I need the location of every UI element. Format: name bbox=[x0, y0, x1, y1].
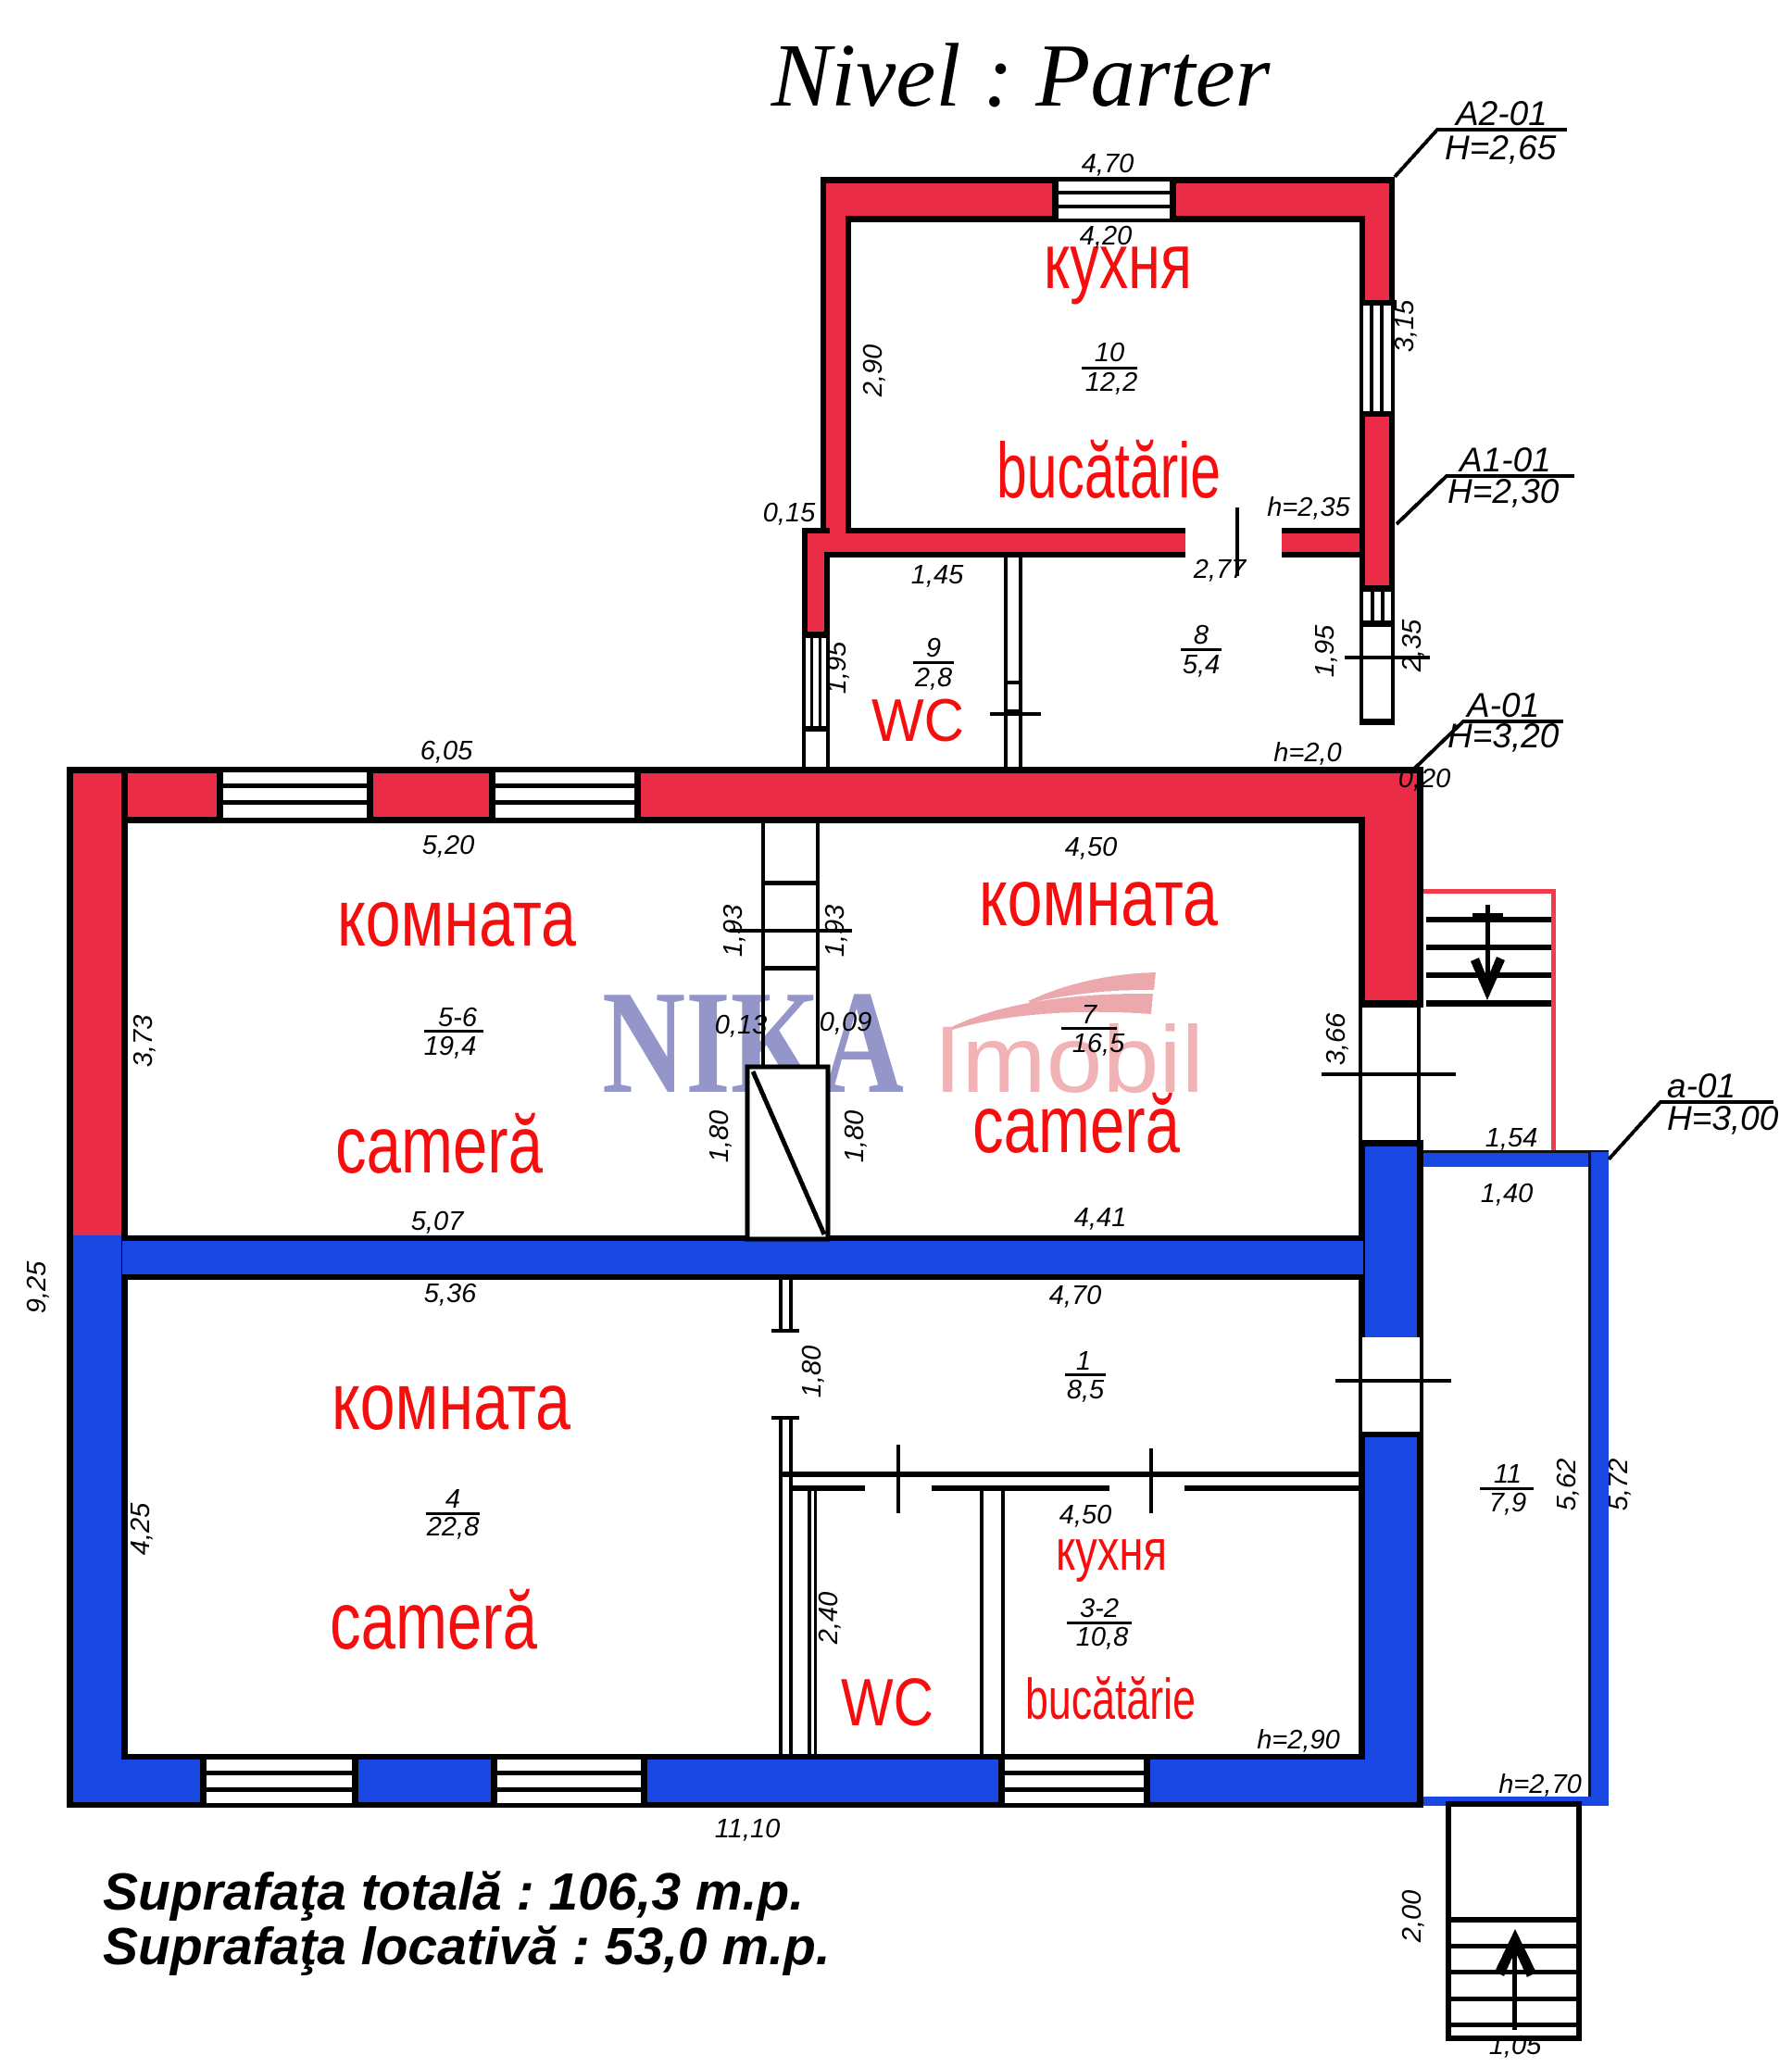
svg-text:1,80: 1,80 bbox=[705, 1110, 734, 1162]
svg-text:5-6: 5-6 bbox=[438, 1003, 478, 1033]
svg-text:H=3,00: H=3,00 bbox=[1667, 1099, 1779, 1137]
svg-text:cameră: cameră bbox=[330, 1576, 537, 1666]
svg-text:1,93: 1,93 bbox=[719, 905, 748, 957]
svg-text:1,80: 1,80 bbox=[840, 1110, 870, 1162]
svg-text:1,40: 1,40 bbox=[1481, 1179, 1533, 1209]
svg-text:0,15: 0,15 bbox=[763, 498, 816, 528]
svg-text:h=2,0: h=2,0 bbox=[1273, 738, 1341, 768]
svg-text:2,77: 2,77 bbox=[1193, 555, 1247, 584]
svg-text:1: 1 bbox=[1076, 1347, 1091, 1376]
svg-text:10: 10 bbox=[1095, 338, 1124, 368]
svg-text:WC: WC bbox=[841, 1666, 934, 1740]
svg-text:5,20: 5,20 bbox=[422, 831, 474, 860]
svg-text:2,40: 2,40 bbox=[814, 1592, 844, 1645]
svg-text:h=2,90: h=2,90 bbox=[1257, 1725, 1340, 1755]
svg-text:5,36: 5,36 bbox=[424, 1279, 477, 1309]
svg-text:0,13: 0,13 bbox=[715, 1010, 767, 1040]
svg-text:3,73: 3,73 bbox=[129, 1015, 158, 1067]
svg-text:Nivel : Parter: Nivel : Parter bbox=[771, 26, 1272, 125]
svg-text:1,05: 1,05 bbox=[1489, 2031, 1542, 2061]
svg-text:H=3,20: H=3,20 bbox=[1447, 717, 1560, 755]
svg-text:WC: WC bbox=[871, 686, 964, 754]
svg-text:2,90: 2,90 bbox=[858, 344, 888, 397]
svg-text:h=2,35: h=2,35 bbox=[1267, 493, 1350, 522]
svg-text:10,8: 10,8 bbox=[1076, 1622, 1128, 1652]
svg-text:4,41: 4,41 bbox=[1074, 1203, 1126, 1233]
svg-text:11,10: 11,10 bbox=[715, 1814, 780, 1844]
svg-text:5,62: 5,62 bbox=[1552, 1459, 1582, 1510]
svg-text:5,72: 5,72 bbox=[1604, 1459, 1634, 1510]
svg-text:3-2: 3-2 bbox=[1080, 1594, 1119, 1623]
svg-text:4,70: 4,70 bbox=[1082, 149, 1134, 179]
svg-text:A2-01: A2-01 bbox=[1454, 94, 1548, 132]
svg-text:комната: комната bbox=[979, 853, 1218, 943]
svg-text:7,9: 7,9 bbox=[1489, 1488, 1526, 1518]
svg-text:1,45: 1,45 bbox=[911, 560, 964, 590]
svg-text:1,80: 1,80 bbox=[797, 1346, 827, 1397]
svg-text:0,20: 0,20 bbox=[1398, 764, 1450, 794]
svg-text:9,25: 9,25 bbox=[22, 1260, 52, 1313]
svg-text:H=2,65: H=2,65 bbox=[1445, 129, 1557, 167]
svg-text:комната: комната bbox=[337, 873, 576, 963]
svg-text:cameră: cameră bbox=[335, 1100, 543, 1190]
svg-text:1,95: 1,95 bbox=[822, 641, 852, 694]
svg-text:7: 7 bbox=[1082, 1000, 1098, 1030]
svg-text:3,66: 3,66 bbox=[1322, 1012, 1351, 1065]
svg-text:4: 4 bbox=[445, 1484, 460, 1514]
svg-text:bucătărie: bucătărie bbox=[996, 427, 1221, 514]
svg-text:Suprafaţa locativă : 53,0 m.: Suprafaţa locativă : 53,0 m.p. bbox=[103, 1917, 831, 1976]
svg-text:Suprafaţa totală : 106,3 m.p: Suprafaţa totală : 106,3 m.p. bbox=[103, 1862, 804, 1922]
svg-text:12,2: 12,2 bbox=[1085, 368, 1137, 397]
svg-text:22,8: 22,8 bbox=[426, 1512, 479, 1542]
svg-text:2,00: 2,00 bbox=[1397, 1890, 1427, 1943]
svg-text:bucătărie: bucătărie bbox=[1025, 1668, 1196, 1732]
svg-text:9: 9 bbox=[926, 633, 941, 663]
svg-text:19,4: 19,4 bbox=[424, 1032, 476, 1061]
svg-text:8: 8 bbox=[1194, 620, 1209, 650]
svg-text:3,15: 3,15 bbox=[1390, 299, 1420, 352]
svg-text:H=2,30: H=2,30 bbox=[1447, 472, 1560, 510]
svg-text:11: 11 bbox=[1494, 1459, 1522, 1489]
svg-text:4,70: 4,70 bbox=[1049, 1281, 1101, 1310]
svg-text:комната: комната bbox=[332, 1357, 570, 1447]
svg-text:cameră: cameră bbox=[972, 1080, 1180, 1170]
svg-text:1,93: 1,93 bbox=[821, 905, 850, 957]
svg-text:4,20: 4,20 bbox=[1080, 221, 1132, 251]
svg-text:2,35: 2,35 bbox=[1397, 619, 1427, 672]
svg-text:4,25: 4,25 bbox=[126, 1502, 156, 1555]
svg-text:h=2,70: h=2,70 bbox=[1498, 1770, 1582, 1799]
svg-text:0,09: 0,09 bbox=[820, 1008, 871, 1037]
svg-text:5,4: 5,4 bbox=[1183, 650, 1220, 680]
svg-text:8,5: 8,5 bbox=[1067, 1375, 1105, 1405]
svg-text:1,54: 1,54 bbox=[1485, 1123, 1537, 1153]
svg-text:16,5: 16,5 bbox=[1072, 1029, 1125, 1059]
svg-text:5,07: 5,07 bbox=[411, 1207, 465, 1236]
svg-text:6,05: 6,05 bbox=[420, 736, 473, 766]
svg-text:1,95: 1,95 bbox=[1310, 624, 1340, 677]
svg-text:кухня: кухня bbox=[1056, 1519, 1167, 1583]
